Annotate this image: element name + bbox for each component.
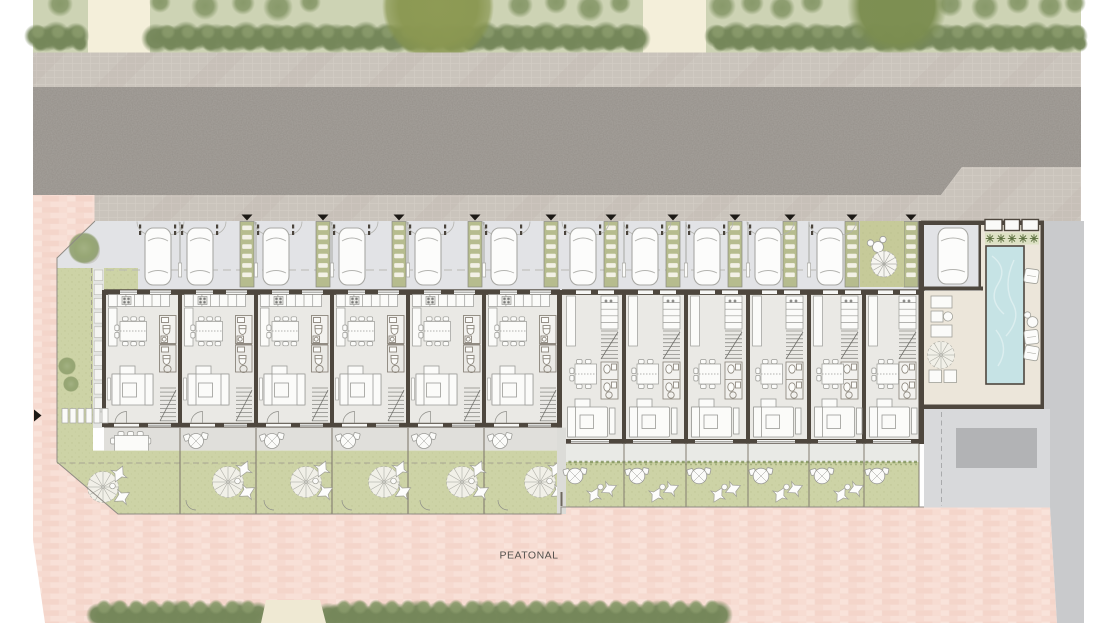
svg-text:PEATONAL: PEATONAL [499,550,558,562]
